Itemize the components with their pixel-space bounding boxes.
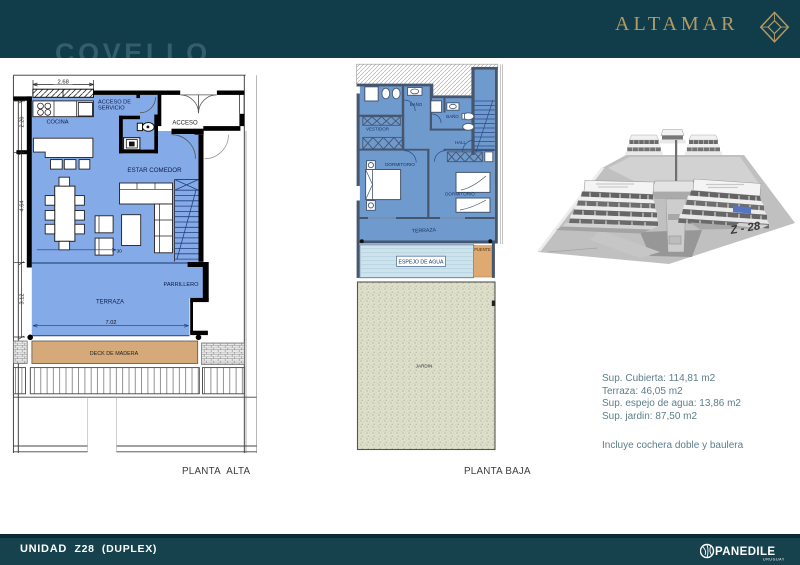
svg-text:BAÑO: BAÑO: [446, 114, 459, 119]
svg-text:PUENTE: PUENTE: [474, 247, 491, 252]
svg-text:SERVICIO: SERVICIO: [98, 106, 125, 112]
svg-text:HALL: HALL: [455, 140, 467, 145]
svg-text:2.20: 2.20: [20, 117, 26, 128]
svg-text:ESTAR COMEDOR: ESTAR COMEDOR: [127, 167, 182, 174]
svg-text:ACCESO: ACCESO: [172, 121, 198, 127]
svg-text:TERRAZA: TERRAZA: [96, 299, 124, 305]
svg-text:URUGUAY: URUGUAY: [763, 558, 785, 562]
svg-text:JARDIN: JARDIN: [416, 364, 433, 369]
svg-text:4.64: 4.64: [20, 201, 26, 212]
svg-text:7.02: 7.02: [106, 320, 117, 326]
svg-text:30: 30: [117, 249, 123, 255]
svg-text:PARRILLERO: PARRILLERO: [164, 282, 200, 288]
svg-text:DORMITORIO: DORMITORIO: [445, 192, 475, 197]
svg-text:VESTIDOR: VESTIDOR: [366, 127, 390, 132]
svg-text:2.68: 2.68: [58, 80, 69, 86]
svg-text:DECK DE MADERA: DECK DE MADERA: [90, 351, 139, 357]
svg-text:COCINA: COCINA: [46, 119, 68, 125]
svg-text:DORMITORIO: DORMITORIO: [385, 162, 415, 167]
svg-text:ACCESO DE: ACCESO DE: [98, 99, 131, 105]
svg-text:ESPEJO DE AGUA: ESPEJO DE AGUA: [399, 260, 445, 266]
svg-text:3.12: 3.12: [20, 294, 26, 305]
svg-text:PANEDILE: PANEDILE: [715, 546, 776, 558]
